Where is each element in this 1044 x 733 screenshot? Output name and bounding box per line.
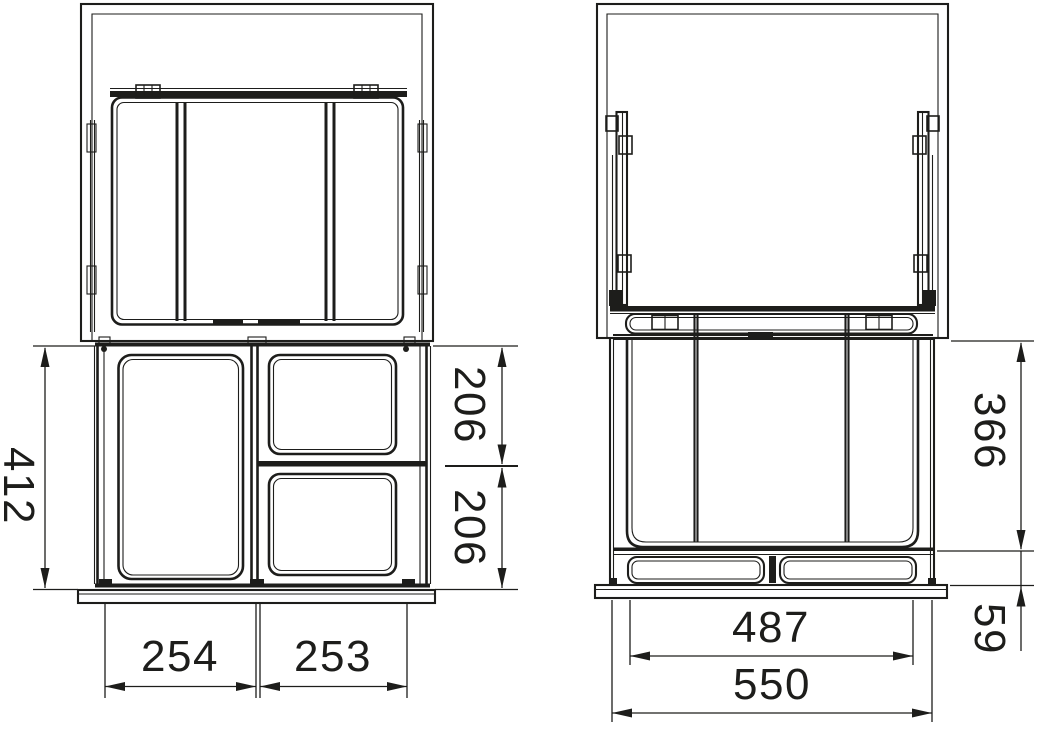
dim-label-right-bin-width: 253	[294, 632, 372, 681]
dim-label-inner-depth: 487	[732, 603, 810, 652]
dim-label-lower-bin-height: 206	[445, 489, 494, 567]
bin-divider-shelf	[258, 461, 426, 467]
dim-label-upper-bin-height: 206	[445, 366, 494, 444]
drawing-background	[0, 0, 1044, 733]
dim-label-total-height: 412	[0, 447, 43, 525]
dim-label-base-height: 59	[965, 603, 1014, 655]
technical-drawing-page: 412 206 206 254	[0, 0, 1044, 733]
dim-label-bin-height: 366	[965, 392, 1014, 470]
dim-label-left-bin-width: 254	[141, 632, 219, 681]
technical-drawing-canvas: 412 206 206 254	[0, 0, 1044, 733]
dim-label-total-depth: 550	[733, 660, 811, 709]
